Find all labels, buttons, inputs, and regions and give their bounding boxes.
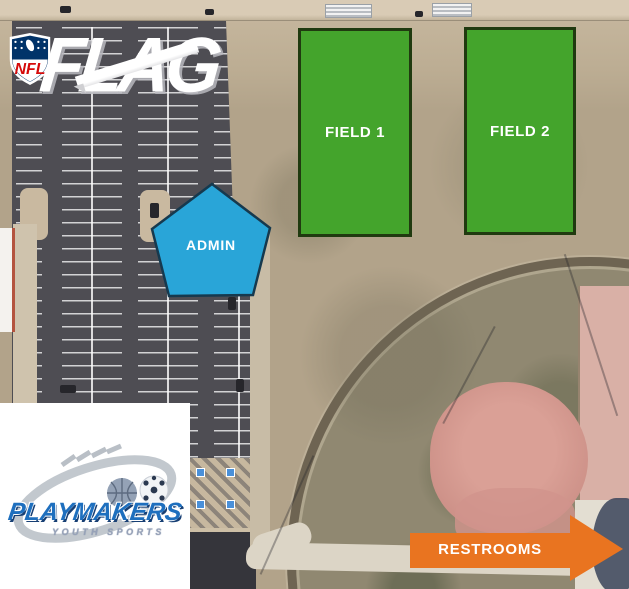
car-mark xyxy=(60,385,76,393)
field-1-label: FIELD 1 xyxy=(325,124,385,141)
restrooms-label: RESTROOMS xyxy=(410,541,570,558)
nfl-flag-wordmark: FLAG xyxy=(35,16,266,124)
site-map: FIELD 1 FIELD 2 ADMIN RESTROOMS FLAG NFL xyxy=(0,0,629,589)
building-left-edge xyxy=(0,228,15,332)
car-mark xyxy=(415,11,423,17)
handicap-space-mark xyxy=(196,500,205,509)
rooftop-building xyxy=(432,3,472,17)
nfl-shield-text: NFL xyxy=(15,61,46,78)
field-1-marker: FIELD 1 xyxy=(298,28,412,237)
field-2-label: FIELD 2 xyxy=(490,123,550,140)
field-2-marker: FIELD 2 xyxy=(464,27,576,235)
handicap-space-mark xyxy=(226,500,235,509)
playmakers-name: PLAYMAKERS xyxy=(2,498,188,527)
car-mark xyxy=(60,6,71,13)
car-mark xyxy=(205,9,214,15)
handicap-parking-area xyxy=(188,458,256,530)
sidewalk-left xyxy=(13,224,37,424)
playmakers-logo-card: PLAYMAKERS YOUTH SPORTS xyxy=(0,403,190,589)
playmakers-logo-graphics xyxy=(0,431,190,561)
admin-label: ADMIN xyxy=(150,237,272,253)
playmakers-tagline: YOUTH SPORTS xyxy=(36,527,181,537)
rooftop-building xyxy=(325,4,372,18)
nfl-shield-icon: NFL xyxy=(8,22,52,96)
car-mark xyxy=(236,379,244,392)
handicap-space-mark xyxy=(196,468,205,477)
handicap-space-mark xyxy=(226,468,235,477)
